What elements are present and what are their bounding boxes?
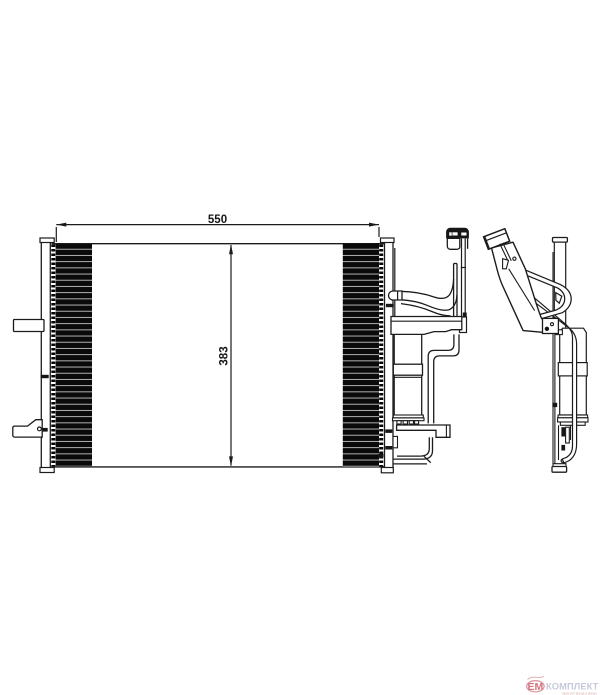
svg-text:ЕМ: ЕМ: [528, 681, 544, 693]
svg-text:юриј смт всеод в умное: юриј смт всеод в умное: [562, 692, 597, 695]
svg-text:КОМПЛЕКТ: КОМПЛЕКТ: [546, 682, 599, 692]
svg-text:550: 550: [208, 214, 227, 226]
svg-text:383: 383: [218, 346, 230, 365]
